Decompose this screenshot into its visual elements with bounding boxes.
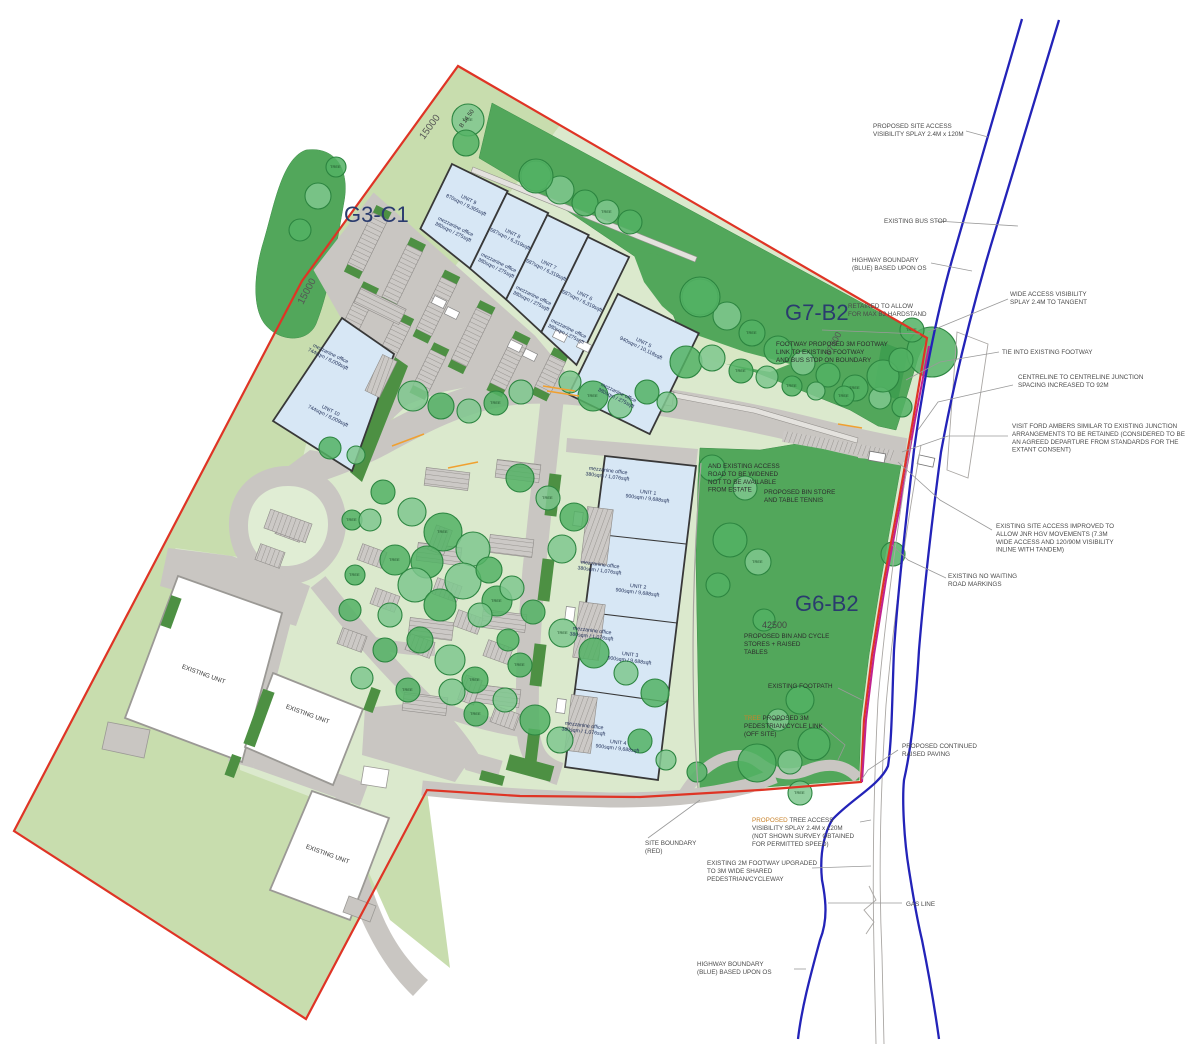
svg-text:TREE: TREE	[587, 393, 598, 398]
svg-text:EXISTING NO WAITINGROAD MARKIN: EXISTING NO WAITINGROAD MARKINGS	[948, 573, 1017, 588]
svg-text:G6-B2: G6-B2	[795, 591, 859, 616]
svg-text:RETAINED TO ALLOWFOR MAX B2 HA: RETAINED TO ALLOWFOR MAX B2 HARDSTAND	[848, 303, 927, 318]
svg-text:TREE: TREE	[389, 557, 400, 562]
svg-text:42500: 42500	[762, 620, 787, 630]
svg-text:TIE INTO EXISTING FOOTWAY: TIE INTO EXISTING FOOTWAY	[1002, 349, 1093, 356]
svg-text:EXISTING FOOTPATH: EXISTING FOOTPATH	[768, 683, 833, 690]
svg-text:EXISTING 2M FOOTWAY UPGRADEDTO: EXISTING 2M FOOTWAY UPGRADEDTO 3M WIDE S…	[707, 860, 818, 883]
svg-text:TREE: TREE	[469, 677, 480, 682]
svg-text:SITE BOUNDARY(RED): SITE BOUNDARY(RED)	[645, 840, 697, 855]
svg-text:TREE: TREE	[746, 330, 757, 335]
svg-text:TREE: TREE	[491, 598, 502, 603]
svg-text:TREE: TREE	[735, 368, 746, 373]
svg-text:TREE: TREE	[514, 662, 525, 667]
svg-text:CENTRELINE TO CENTRELINE JUNCT: CENTRELINE TO CENTRELINE JUNCTIONSPACING…	[1018, 374, 1144, 389]
svg-text:HIGHWAY BOUNDARY(BLUE) BASED U: HIGHWAY BOUNDARY(BLUE) BASED UPON OS	[852, 257, 927, 272]
svg-text:EXISTING BUS STOP: EXISTING BUS STOP	[884, 218, 947, 225]
svg-text:GAS LINE: GAS LINE	[906, 901, 935, 908]
svg-text:TREE: TREE	[349, 572, 360, 577]
svg-text:TREE: TREE	[557, 630, 568, 635]
svg-text:G7-B2: G7-B2	[785, 300, 849, 325]
svg-text:TREE: TREE	[330, 164, 341, 169]
svg-text:PROPOSED SITE ACCESSVISIBILITY: PROPOSED SITE ACCESSVISIBILITY SPLAY 2.4…	[873, 123, 964, 138]
svg-text:TREE: TREE	[601, 209, 612, 214]
svg-text:TREE: TREE	[752, 559, 763, 564]
svg-text:TREE: TREE	[346, 517, 357, 522]
svg-text:G3-C1: G3-C1	[344, 202, 409, 227]
svg-text:VISIBILITY SPLAY 2.4M x 120M(N: VISIBILITY SPLAY 2.4M x 120M(NOT SHOWN S…	[752, 825, 854, 848]
svg-text:EXISTING SITE ACCESS IMPROVED: EXISTING SITE ACCESS IMPROVED TOALLOW JN…	[996, 523, 1114, 554]
svg-text:TREE PROPOSED 3M: TREE PROPOSED 3M	[744, 715, 809, 722]
svg-text:PROPOSED CONTINUEDRAISED PAVIN: PROPOSED CONTINUEDRAISED PAVING	[902, 743, 977, 758]
svg-text:PROPOSED TREE ACCESS: PROPOSED TREE ACCESS	[752, 817, 833, 824]
svg-text:TREE: TREE	[849, 385, 860, 390]
svg-text:TREE: TREE	[470, 711, 481, 716]
svg-text:TREE: TREE	[794, 790, 805, 795]
svg-text:VISIT FORD AMBERS SIMILAR TO E: VISIT FORD AMBERS SIMILAR TO EXISTING JU…	[1012, 423, 1185, 454]
svg-text:TREE: TREE	[542, 495, 553, 500]
svg-text:TREE: TREE	[838, 393, 849, 398]
svg-text:TREE: TREE	[402, 687, 413, 692]
svg-text:HIGHWAY BOUNDARY(BLUE) BASED U: HIGHWAY BOUNDARY(BLUE) BASED UPON OS	[697, 961, 772, 976]
svg-text:TREE: TREE	[437, 529, 448, 534]
svg-text:TREE: TREE	[490, 400, 501, 405]
svg-text:WIDE ACCESS VISIBILITYSPLAY 2.: WIDE ACCESS VISIBILITYSPLAY 2.4M TO TANG…	[1010, 291, 1087, 306]
svg-text:TREE: TREE	[786, 383, 797, 388]
